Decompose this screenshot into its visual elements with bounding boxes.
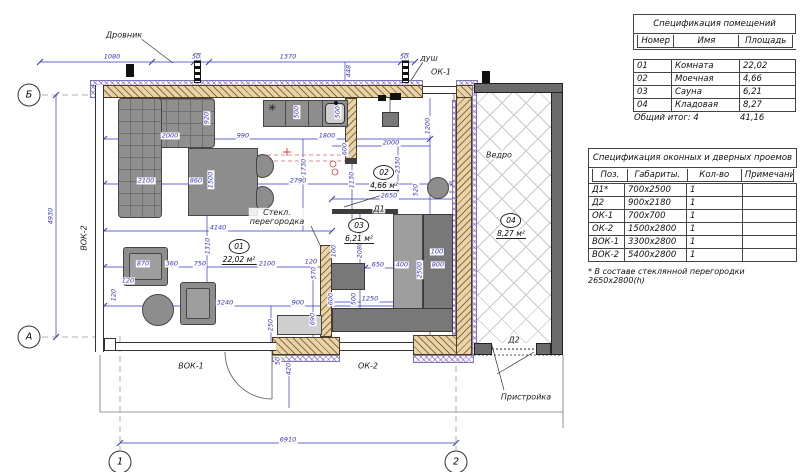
cell (742, 249, 797, 262)
cell: Кладовая (671, 99, 739, 112)
dimension-label: 50 (191, 53, 201, 60)
wall-right (456, 97, 472, 355)
axis-bubble-А: А (18, 326, 41, 349)
plan-label-d1: Д1 (372, 204, 385, 213)
table-row: ОК-21500x28001 (588, 223, 797, 236)
dimension-label: 2790 (289, 177, 308, 184)
sauna-stove (331, 263, 365, 290)
dimension-label: 860 (189, 177, 203, 184)
annex-wall-right (551, 92, 563, 355)
dimension-label: 400 (395, 261, 409, 268)
room-area: 6,21 м² (344, 234, 374, 244)
cell: 1 (686, 210, 742, 223)
spec-rooms-total-label: Общий итог: 4 (633, 113, 740, 123)
dimension-label: 100 (330, 244, 337, 258)
corner-post (104, 338, 116, 351)
dimension-label: 870 (136, 260, 150, 267)
plan-label-vedro: Ведро (485, 150, 513, 159)
spec-rooms-title: Спецификация помещений (633, 14, 796, 34)
dimension-label: 500 (334, 105, 341, 119)
window-vok1 (116, 342, 276, 351)
table-row: Д1*700x25001 (588, 184, 797, 197)
dimension-label: 920 (203, 111, 210, 125)
chimney (126, 64, 134, 77)
cell: 1 (686, 223, 742, 236)
shower-mixer (390, 93, 401, 100)
wall-bottom-right (413, 335, 457, 355)
dimension-label: 2100 (137, 177, 156, 184)
annex-wall-stub-left (474, 343, 492, 355)
sofa-left-section (118, 98, 162, 218)
cell: 3300x2800 (624, 236, 686, 249)
floor-plan-sheet: ✳ 10805013705044849306910200092099018006… (0, 0, 800, 472)
table-row: ВОК-13300x28001 (588, 236, 797, 249)
armchair-2-seat (186, 288, 210, 319)
dimension-label: 990 (236, 132, 250, 139)
table-row: Д2900x21801 (588, 197, 797, 210)
cell: 6,21 (739, 86, 796, 99)
stove-burner-icon: ✳ (268, 103, 276, 114)
dimension-label: 2000 (382, 139, 401, 146)
cell (742, 236, 797, 249)
sauna-bench-bottom (332, 308, 453, 332)
cell: 8,27 (739, 99, 796, 112)
cell: Д1* (588, 184, 624, 197)
cell (742, 223, 797, 236)
window-ok1 (423, 86, 456, 94)
dimension-label: 1310 (204, 237, 211, 256)
cell: 5400x2800 (624, 249, 686, 262)
table-row: ВОК-25400x28001 (588, 249, 797, 262)
cell: ОК-1 (588, 210, 624, 223)
dimension-label: 4140 (209, 224, 228, 231)
room-tag-01: 0122,02 м² (222, 239, 257, 265)
cell: 03 (633, 86, 671, 99)
cell: ОК-2 (588, 223, 624, 236)
room-tag-02: 024,66 м² (369, 165, 399, 191)
dimension-label: 4930 (47, 207, 54, 226)
dimension-label: 520 (412, 183, 419, 197)
dimension-label: 120 (121, 277, 135, 284)
dimension-label: 600 (341, 142, 348, 156)
spec-openings-body: Д1*700x25001Д2900x21801ОК-1700x7001ОК-21… (588, 184, 797, 262)
counter-divider-1 (285, 100, 286, 127)
dimension-label: 50 (274, 356, 281, 366)
cell: 04 (633, 99, 671, 112)
spec-openings-header: Поз.Габариты.Кол-воПримечание (588, 168, 797, 184)
dimension-label: 1200 (424, 117, 431, 136)
chair-2 (256, 186, 274, 210)
cell: Номер (637, 35, 673, 48)
spec-table-openings: Спецификация оконных и дверных проемов П… (588, 148, 797, 262)
insulation-bottom-pier (272, 355, 340, 362)
window-ok2 (340, 342, 413, 351)
dimension-label: 360 (165, 260, 179, 267)
room-number: 03 (349, 218, 370, 233)
cell (742, 210, 797, 223)
room-area: 4,66 м² (369, 181, 399, 191)
table-row: 04Кладовая8,27 (633, 99, 796, 112)
cell: Моечная (671, 73, 739, 86)
plan-label-vok2: ВОК-2 (79, 224, 88, 251)
room-area: 22,02 м² (222, 255, 257, 265)
dimension-label: 2100 (258, 260, 277, 267)
dimension-label: 250 (267, 318, 274, 332)
axis-bubble-1: 1 (109, 451, 132, 472)
cell: Д2 (588, 197, 624, 210)
spec-openings-footnote: * В составе стеклянной перегородки 2650x… (588, 267, 800, 285)
annex-wall-stub-right (536, 343, 551, 355)
dimension-label: 100 (430, 248, 444, 255)
dimension-label: 500 (293, 105, 300, 119)
header-row: Поз.Габариты.Кол-воПримечание (588, 168, 797, 184)
plan-label-ok1: ОК-1 (430, 67, 452, 76)
cell: 1 (686, 184, 742, 197)
plan-label-d2: Д2 (507, 335, 520, 344)
wall-top (95, 85, 423, 98)
cell: Комната (671, 60, 739, 73)
cell: Кол-во (687, 169, 741, 182)
wall-bottom-pier (272, 337, 340, 355)
annex-chimney (482, 71, 490, 83)
coffee-table (142, 294, 174, 326)
water-heater (427, 177, 449, 199)
cell: 1 (686, 236, 742, 249)
plan-label-dush: душ (419, 53, 439, 62)
room-number: 02 (374, 165, 395, 180)
table-row: 02Моечная4,66 (633, 73, 796, 86)
dimension-label: 1800 (318, 132, 337, 139)
dimension-label: 120 (110, 288, 117, 302)
cell (742, 197, 797, 210)
cell (742, 184, 797, 197)
dimension-label: 1080 (103, 53, 122, 60)
insulation-bottom-right (413, 355, 474, 363)
counter-divider-3 (322, 100, 323, 127)
door-stop (345, 158, 357, 164)
dimension-label: 1370 (279, 53, 298, 60)
dimension-label: 1730 (300, 158, 307, 177)
cell: 22,02 (739, 60, 796, 73)
spec-rooms-gap (633, 50, 796, 59)
cell: ВОК-1 (588, 236, 624, 249)
room-area: 8,27 м² (496, 229, 526, 239)
dimension-label: 3240 (216, 299, 235, 306)
dimension-label: 570 (310, 266, 317, 280)
spec-rooms-header: НомерИмяПлощадь (633, 34, 796, 50)
spec-table-rooms: Спецификация помещений НомерИмяПлощадь 0… (633, 14, 796, 123)
dimension-label: 448 (345, 64, 352, 78)
plan-label-steklo: Стекл. перегородка (249, 208, 306, 226)
plan-label-ok2: ОК-2 (357, 361, 379, 370)
cell: 4,66 (739, 73, 796, 86)
dimension-label: 900 (291, 299, 305, 306)
cell: 01 (633, 60, 671, 73)
cell: 700x2500 (624, 184, 686, 197)
cell: 900x2180 (624, 197, 686, 210)
annex-wall-top (474, 83, 563, 93)
table-row: ОК-1700x7001 (588, 210, 797, 223)
shower-head (382, 112, 399, 127)
cell: Габариты. (627, 169, 687, 182)
dimension-label: 800 (431, 261, 445, 268)
cell: 700x700 (624, 210, 686, 223)
dimension-label: 1130 (348, 171, 355, 190)
table-row: 01Комната22,02 (633, 60, 796, 73)
room-tag-04: 048,27 м² (496, 213, 526, 239)
spec-rooms-footer: Общий итог: 4 41,16 (633, 112, 796, 123)
dimension-label: 2500 (416, 261, 423, 280)
dimension-label: 2650 (380, 192, 399, 199)
counter-divider-2 (308, 100, 309, 127)
plan-label-pristroyka: Пристройка (500, 392, 552, 401)
cell: Поз. (592, 169, 627, 182)
spec-rooms-total-value: 41,16 (740, 113, 764, 123)
dimension-label: 750 (193, 260, 207, 267)
cell: Площадь (738, 35, 793, 48)
dimension-label: 1250 (361, 295, 380, 302)
dimension-label: 420 (285, 362, 292, 376)
cell: 1 (686, 249, 742, 262)
dimension-label: 2000 (161, 132, 180, 139)
dimension-label: 600 (327, 292, 334, 306)
cell: 1 (686, 197, 742, 210)
spec-rooms-body: 01Комната22,0202Моечная4,6603Сауна6,2104… (633, 59, 796, 112)
dimension-label: 120 (304, 258, 318, 265)
dimension-label: 6910 (279, 436, 298, 443)
room-tag-03: 036,21 м² (344, 218, 374, 244)
table-row: 03Сауна6,21 (633, 86, 796, 99)
window-vok2 (95, 85, 104, 352)
spec-openings-title: Спецификация оконных и дверных проемов (588, 148, 797, 168)
chair-1 (256, 154, 274, 178)
axis-bubble-Б: Б (18, 84, 41, 107)
cell: 1500x2800 (624, 223, 686, 236)
dimension-label: 650 (371, 261, 385, 268)
plan-label-vok1: ВОК-1 (177, 361, 204, 370)
dimension-label: 690 (309, 312, 316, 326)
cell: Сауна (671, 86, 739, 99)
wall-sauna-top (332, 209, 398, 214)
dimension-label: 1500 (207, 171, 214, 190)
header-row: НомерИмяПлощадь (633, 34, 796, 50)
cell: Примечание (741, 169, 794, 182)
plan-label-drovnik: Дровник (105, 30, 143, 39)
cell: Имя (673, 35, 738, 48)
axis-bubble-2: 2 (445, 451, 468, 472)
dimension-label: 500 (350, 292, 357, 306)
shower-valve (378, 95, 386, 101)
room-number: 04 (501, 213, 522, 228)
cell: ВОК-2 (588, 249, 624, 262)
cell: 02 (633, 73, 671, 86)
dimension-label: 50 (399, 53, 409, 60)
room-number: 01 (229, 239, 250, 254)
